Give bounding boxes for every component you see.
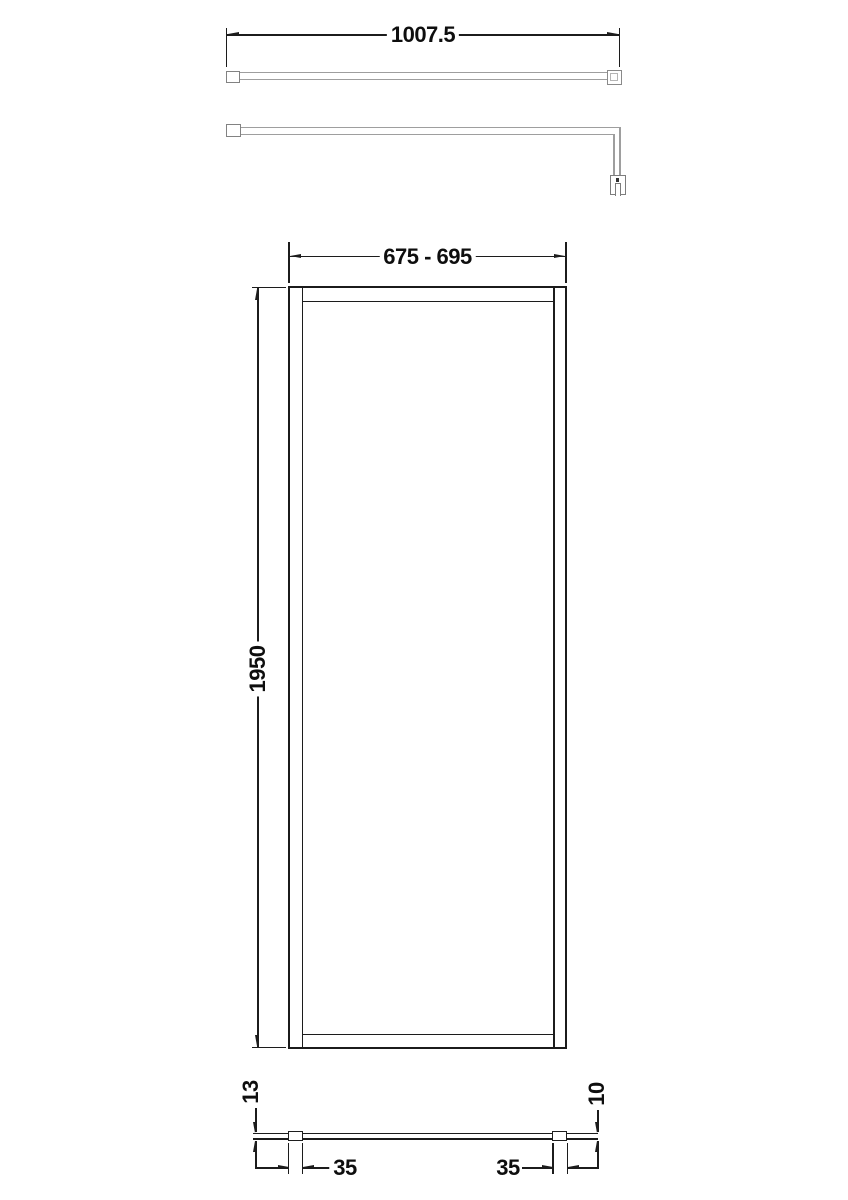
extension-line bbox=[552, 1143, 553, 1174]
drop-tube-inner-line bbox=[613, 134, 615, 175]
extension-line bbox=[288, 242, 289, 283]
wall-bracket bbox=[226, 124, 242, 137]
arrowhead-left-icon bbox=[290, 254, 301, 258]
left-profile-inner-line bbox=[302, 288, 304, 1047]
bar-top-line bbox=[241, 127, 621, 129]
glass-clamp-top-step bbox=[610, 73, 618, 81]
right-wall-profile-section bbox=[552, 1131, 567, 1141]
dimension-line bbox=[303, 1167, 330, 1168]
glass-clamp-pin bbox=[616, 178, 620, 182]
extension-line bbox=[565, 242, 566, 283]
wall-bracket bbox=[226, 71, 241, 83]
drop-tube-outer-line bbox=[619, 127, 621, 175]
left-wall-profile-section bbox=[288, 1131, 303, 1141]
dimension-line bbox=[597, 1141, 598, 1169]
right-profile-width-label: 35 bbox=[492, 1156, 523, 1180]
glass-edge-top-line bbox=[253, 1133, 599, 1134]
dimension-line bbox=[568, 1167, 599, 1168]
support-bar-body bbox=[240, 72, 609, 80]
glass-edge-bottom-line bbox=[253, 1138, 599, 1139]
technical-drawing-canvas: 1007.5 675 - 695 1950 bbox=[0, 0, 848, 1200]
arrowhead-up-icon bbox=[255, 289, 259, 300]
arrowhead-down-icon bbox=[255, 1035, 259, 1046]
arrowhead-right-icon bbox=[278, 1165, 289, 1169]
support-bar-length-label: 1007.5 bbox=[387, 23, 459, 47]
bottom-rail-inner-line bbox=[303, 1034, 553, 1036]
arrowhead-left-icon bbox=[228, 32, 239, 36]
glass-clamp-slot bbox=[615, 183, 621, 195]
frame-depth-label: 13 bbox=[239, 1076, 263, 1107]
screen-frame-outline bbox=[288, 286, 567, 1049]
left-profile-width-label: 35 bbox=[329, 1156, 360, 1180]
right-profile-inner-line bbox=[553, 288, 555, 1047]
dimension-line bbox=[255, 1141, 256, 1169]
arrowhead-right-icon bbox=[554, 254, 565, 258]
arrowhead-down-icon bbox=[595, 1122, 599, 1133]
screen-width-label: 675 - 695 bbox=[379, 245, 475, 269]
glass-thickness-label: 10 bbox=[585, 1078, 609, 1109]
extension-line bbox=[567, 1143, 568, 1174]
screen-height-label: 1950 bbox=[246, 642, 270, 697]
bar-bottom-line bbox=[241, 134, 615, 136]
arrowhead-right-icon bbox=[607, 32, 618, 36]
arrowhead-down-icon bbox=[253, 1122, 257, 1133]
top-rail-inner-line bbox=[303, 301, 553, 303]
